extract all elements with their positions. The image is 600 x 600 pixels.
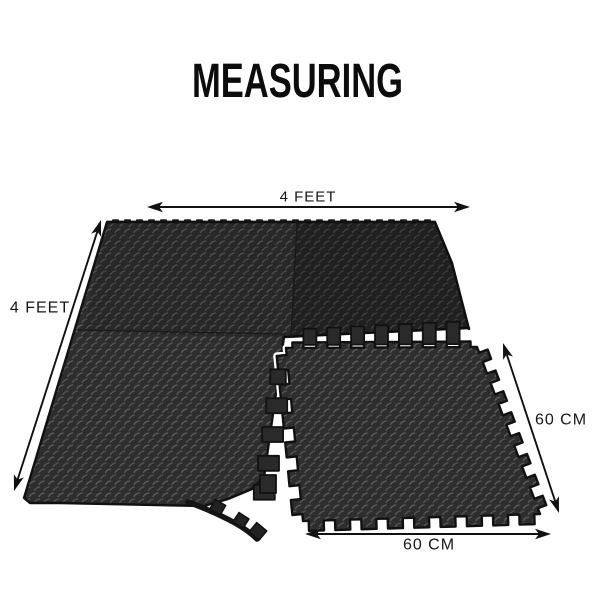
svg-text:60 CM: 60 CM bbox=[535, 412, 587, 429]
svg-text:4 FEET: 4 FEET bbox=[10, 300, 70, 317]
svg-text:MEASURING: MEASURING bbox=[192, 54, 403, 108]
svg-text:60 CM: 60 CM bbox=[403, 537, 455, 554]
svg-text:4 FEET: 4 FEET bbox=[280, 189, 337, 206]
